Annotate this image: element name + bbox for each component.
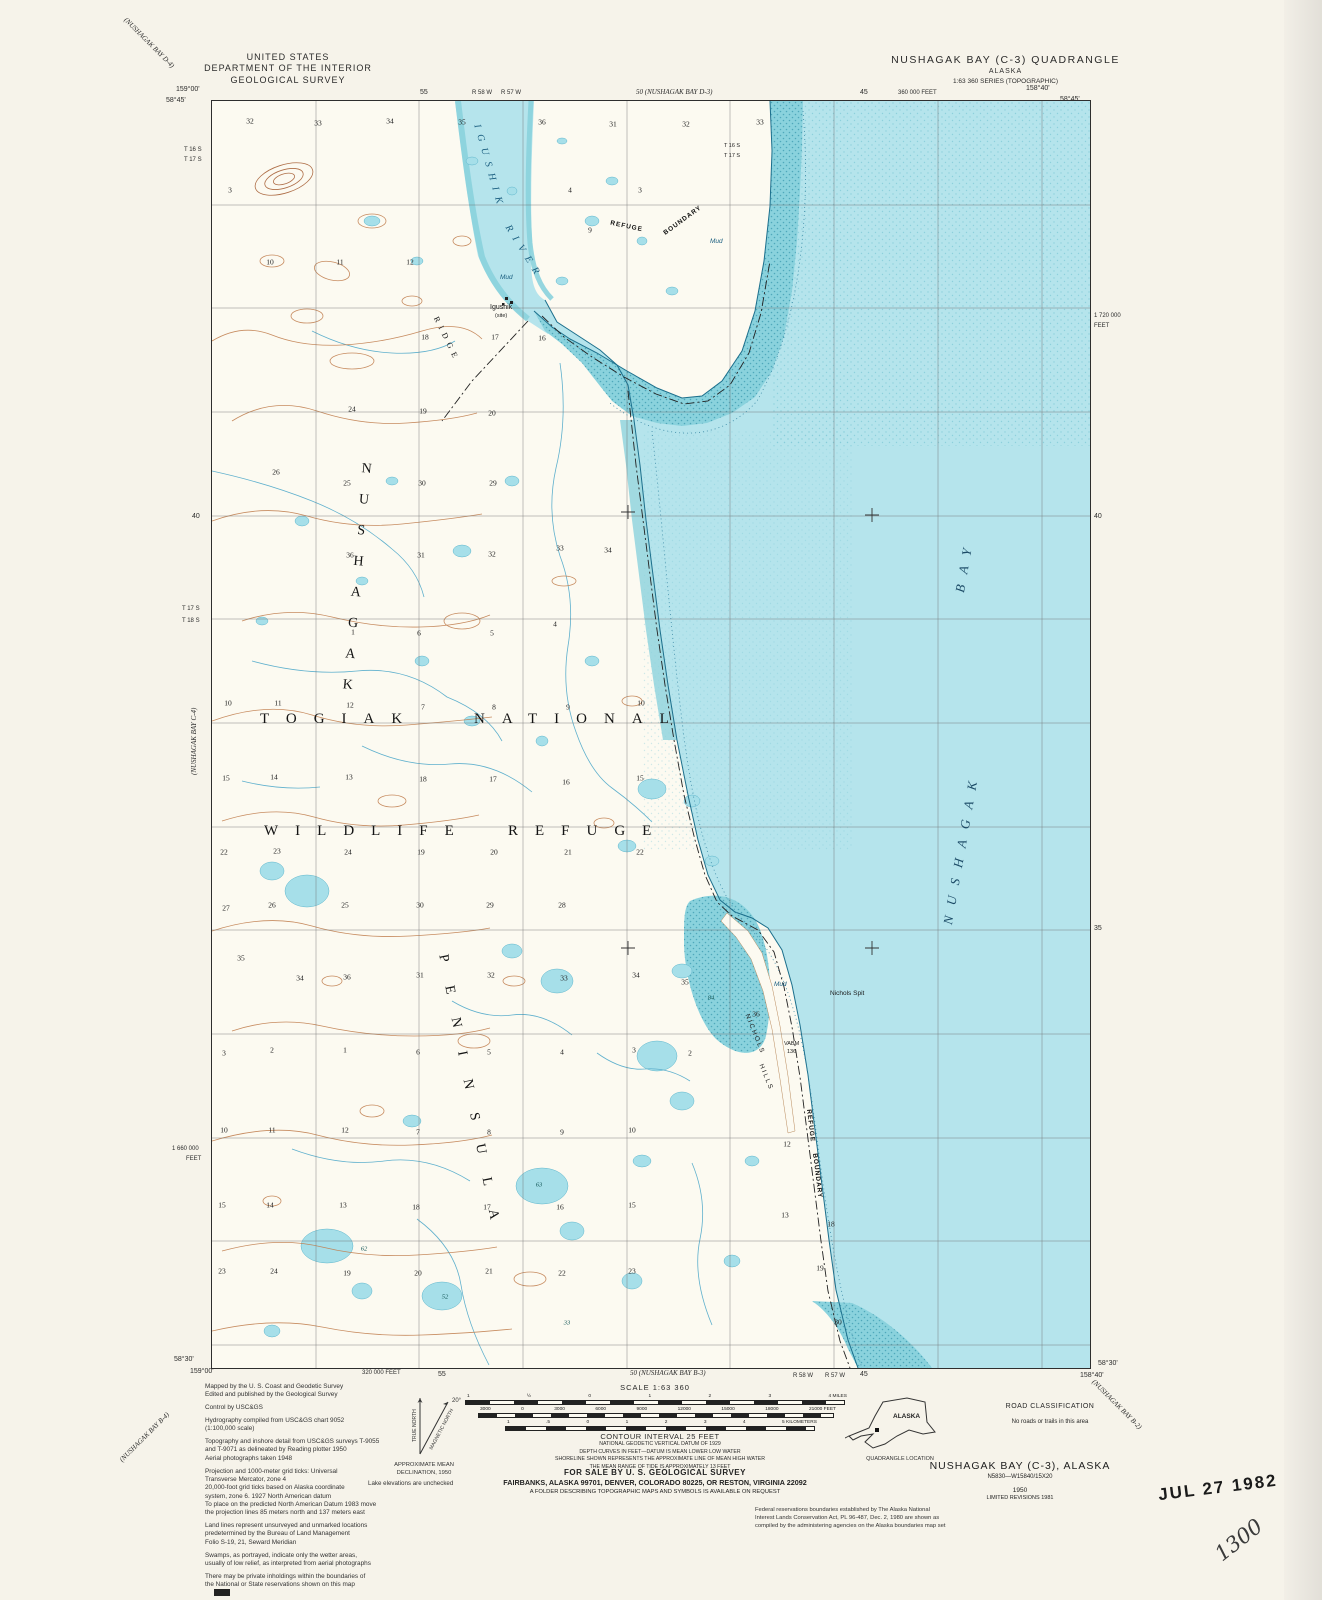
feet-label-right-1: 1 720 000 — [1094, 313, 1121, 319]
bar-tick: 21000 FEET — [809, 1407, 836, 1412]
section-number: 18 — [421, 333, 429, 342]
bar-tick: 15000 — [721, 1407, 734, 1412]
section-number: 19 — [417, 848, 425, 857]
km-bar — [505, 1426, 815, 1431]
section-number: 28 — [558, 901, 566, 910]
section-number: 1 — [351, 628, 355, 637]
sale-line1: FOR SALE BY U. S. GEOLOGICAL SURVEY — [455, 1468, 855, 1477]
section-number: 14 — [266, 1201, 274, 1210]
section-number: 13 — [339, 1201, 347, 1210]
date-stamp: JUL 27 1982 — [1157, 1471, 1279, 1505]
bar-tick: 12000 — [678, 1407, 691, 1412]
section-number: 3 — [222, 1049, 226, 1058]
bar-tick: 1 — [648, 1394, 651, 1399]
feet-tick-labels: 3000030006000900012000150001800021000 FE… — [478, 1407, 834, 1412]
map-canvas: TOGIAK NATIONAL WILDLIFE REFUGE NUSHAGAK… — [212, 101, 1090, 1368]
adjoining-quad-top-left: (NUSHAGAK BAY D-4) — [122, 16, 176, 70]
section-number: 33 — [560, 974, 568, 983]
bar-tick: 3000 — [554, 1407, 565, 1412]
road-classification-title: ROAD CLASSIFICATION — [985, 1403, 1115, 1410]
section-number: 3 — [632, 1046, 636, 1055]
bar-tick: 1 — [626, 1420, 629, 1425]
section-number: 16 — [538, 334, 546, 343]
range-label-top-2: R 57 W — [501, 90, 521, 96]
sale-block: FOR SALE BY U. S. GEOLOGICAL SURVEY FAIR… — [455, 1468, 855, 1495]
bar-tick: 3 — [704, 1420, 707, 1425]
road-classification-note: No roads or trails in this area — [985, 1419, 1115, 1425]
section-number: 15 — [628, 1201, 636, 1210]
section-number: 33 — [556, 544, 564, 553]
section-number: 1 — [343, 1046, 347, 1055]
bar-tick: 2 — [708, 1394, 711, 1399]
spot-elevation: 62 — [361, 1246, 368, 1253]
agency-line1: UNITED STATES — [168, 52, 408, 63]
section-number: 8 — [492, 703, 496, 712]
feet-label-left-2: FEET — [186, 1156, 201, 1162]
section-number: 32 — [487, 971, 495, 980]
quad-state: ALASKA — [858, 68, 1153, 77]
section-number: 26 — [272, 468, 280, 477]
section-number: 31 — [609, 120, 617, 129]
bar-tick: 0 — [588, 1394, 591, 1399]
grid-tick-right-40: 40 — [1094, 513, 1102, 520]
bar-tick: 6000 — [595, 1407, 606, 1412]
spot-elevation: 84 — [708, 995, 715, 1002]
section-number: 11 — [274, 699, 281, 708]
section-number: 30 — [834, 1318, 842, 1327]
section-number: 14 — [270, 773, 278, 782]
section-number: 20 — [414, 1269, 422, 1278]
section-number: 3 — [638, 186, 642, 195]
section-number: 34 — [296, 974, 304, 983]
section-number: 21 — [485, 1267, 493, 1276]
section-number: 34 — [632, 971, 640, 980]
section-number: 30 — [418, 479, 426, 488]
section-number: 9 — [560, 1128, 564, 1137]
spot-elevation: 63 — [536, 1182, 543, 1189]
section-number: 32 — [682, 120, 690, 129]
section-number: 2 — [688, 1049, 692, 1058]
section-number: 5 — [490, 629, 494, 638]
contour-interval: CONTOUR INTERVAL 25 FEET — [500, 1432, 820, 1441]
declination-angle: 20° — [452, 1398, 462, 1404]
section-number: 4 — [553, 620, 557, 629]
section-number: 16 — [556, 1203, 564, 1212]
section-number: 18 — [827, 1220, 835, 1229]
grid-tick-right-35: 35 — [1094, 925, 1102, 932]
credit-p: Swamps, as portrayed, indicate only the … — [205, 1552, 441, 1569]
section-number: 35 — [458, 118, 466, 127]
section-number: 10 — [266, 258, 274, 267]
bar-tick: 9000 — [637, 1407, 648, 1412]
bar-tick: 3 — [769, 1394, 772, 1399]
section-number: 15 — [222, 774, 230, 783]
section-number: 23 — [273, 847, 281, 856]
contour-interval-block: CONTOUR INTERVAL 25 FEET NATIONAL GEODET… — [500, 1432, 820, 1471]
section-number: 13 — [781, 1211, 789, 1220]
contour-line: DEPTH CURVES IN FEET—DATUM IS MEAN LOWER… — [500, 1449, 820, 1457]
section-number: 22 — [558, 1269, 566, 1278]
range-label-bottom-2: R 57 W — [825, 1373, 845, 1379]
section-number: 15 — [636, 774, 644, 783]
sheet-title-block: NUSHAGAK BAY (C-3), ALASKA N5830—W15840/… — [920, 1460, 1120, 1501]
section-number: 13 — [345, 773, 353, 782]
grid-tick-left-40: 40 — [192, 513, 200, 520]
credit-p: There may be private inholdings within t… — [205, 1573, 441, 1590]
section-number: 33 — [314, 119, 322, 128]
grid-tick-top-55: 55 — [420, 89, 428, 96]
contour-notes: NATIONAL GEODETIC VERTICAL DATUM OF 1929… — [500, 1441, 820, 1471]
section-number: 2 — [270, 1046, 274, 1055]
section-number: 24 — [344, 848, 352, 857]
corner-lon-bottom-right: 158°40' — [1080, 1372, 1104, 1379]
corner-lon-bottom-left: 159°00' — [190, 1368, 214, 1375]
section-number: 17 — [491, 333, 499, 342]
agency-line2: DEPARTMENT OF THE INTERIOR — [168, 63, 408, 74]
declination-diagram: 20° TRUE NORTH MAGNETIC NORTH — [392, 1392, 472, 1460]
bar-tick: 1 — [507, 1420, 510, 1425]
section-number: 16 — [562, 778, 570, 787]
section-number: 19 — [419, 407, 427, 416]
section-number: 15 — [218, 1201, 226, 1210]
quad-title-block: NUSHAGAK BAY (C-3) QUADRANGLE ALASKA 1:6… — [858, 54, 1153, 86]
bar-tick: 3000 — [480, 1407, 491, 1412]
quad-series: 1:63 360 SERIES (TOPOGRAPHIC) — [858, 78, 1153, 86]
section-number: 34 — [386, 117, 394, 126]
quad-title: NUSHAGAK BAY (C-3) QUADRANGLE — [858, 54, 1153, 67]
feet-label-left-1: 1 660 000 — [172, 1146, 199, 1152]
section-number: 17 — [489, 775, 497, 784]
section-number: 25 — [341, 901, 349, 910]
section-number: 4 — [568, 186, 572, 195]
section-number: 31 — [417, 551, 425, 560]
grid-tick-bottom-45: 45 — [860, 1371, 868, 1378]
range-label-bottom-1: R 58 W — [793, 1373, 813, 1379]
sheet-title: NUSHAGAK BAY (C-3), ALASKA — [920, 1460, 1120, 1472]
section-number: 25 — [343, 479, 351, 488]
scanned-topo-map-page: { "header": { "agency_line1": "UNITED ST… — [0, 0, 1322, 1600]
section-number: 33 — [756, 118, 764, 127]
section-number: 24 — [348, 405, 356, 414]
feet-bar — [478, 1413, 834, 1418]
section-number: 23 — [628, 1267, 636, 1276]
adjoining-quad-top-center: 50 (NUSHAGAK BAY D-3) — [636, 88, 712, 96]
section-number: 22 — [220, 848, 228, 857]
section-number: 31 — [416, 971, 424, 980]
handwritten-number: 1300 — [1210, 1514, 1267, 1566]
section-number: 20 — [488, 409, 496, 418]
section-number: 23 — [218, 1267, 226, 1276]
section-number: 19 — [816, 1264, 824, 1273]
feet-label-top: 360 000 FEET — [898, 90, 937, 96]
bar-tick: 18000 — [765, 1407, 778, 1412]
section-numbers-layer: 3233343536313233343910111218171624192026… — [212, 101, 1090, 1368]
section-number: 7 — [416, 1128, 420, 1137]
township-left-t17s-2: T 17 S — [182, 606, 200, 612]
spot-elevation: 33 — [564, 1320, 571, 1327]
section-number: 11 — [336, 258, 343, 267]
sheet-code: N5830—W15840/15X20 — [920, 1474, 1120, 1480]
township-left-t16s: T 16 S — [184, 147, 202, 153]
miles-tick-labels: 1½01234 MILES — [465, 1394, 845, 1399]
corner-lon-top-right: 158°40' — [1026, 85, 1050, 92]
adjoining-quad-bottom-center: 50 (NUSHAGAK BAY B-3) — [630, 1369, 706, 1377]
section-number: 12 — [783, 1140, 791, 1149]
miles-bar — [465, 1400, 845, 1405]
range-label-top-1: R 58 W — [472, 90, 492, 96]
section-number: 34 — [604, 546, 612, 555]
section-number: 36 — [752, 1010, 760, 1019]
bar-tick: 5 KILOMETERS — [782, 1420, 817, 1425]
section-number: 10 — [220, 1126, 228, 1135]
contour-line: NATIONAL GEODETIC VERTICAL DATUM OF 1929 — [500, 1441, 820, 1449]
scale-bar-miles: 1½01234 MILES — [465, 1394, 845, 1405]
section-number: 29 — [486, 901, 494, 910]
adjoining-quad-bottom-left: (NUSHAGAK BAY B-4) — [118, 1411, 171, 1464]
section-number: 9 — [588, 226, 592, 235]
section-number: 6 — [417, 629, 421, 638]
sale-line3: A FOLDER DESCRIBING TOPOGRAPHIC MAPS AND… — [455, 1489, 855, 1495]
section-number: 17 — [483, 1203, 491, 1212]
section-number: 12 — [406, 258, 414, 267]
sale-line2: FAIRBANKS, ALASKA 99701, DENVER, COLORAD… — [455, 1478, 855, 1487]
township-left-t18s: T 18 S — [182, 618, 200, 624]
corner-lat-bottom-left: 58°30' — [174, 1356, 194, 1363]
section-number: 30 — [416, 901, 424, 910]
inset-alaska-label: ALASKA — [893, 1413, 920, 1420]
quadrangle-location-inset: ALASKA — [845, 1388, 955, 1458]
feet-label-right-2: FEET — [1094, 323, 1109, 329]
spot-elevation: 52 — [442, 1294, 449, 1301]
grid-tick-top-45: 45 — [860, 89, 868, 96]
section-number: 11 — [268, 1126, 275, 1135]
section-number: 10 — [628, 1126, 636, 1135]
agency-header: UNITED STATES DEPARTMENT OF THE INTERIOR… — [168, 52, 408, 86]
section-number: 12 — [341, 1126, 349, 1135]
sheet-revision: LIMITED REVISIONS 1981 — [920, 1495, 1120, 1501]
township-left-t17s: T 17 S — [184, 157, 202, 163]
federal-reservations-note: Federal reservations boundaries establis… — [755, 1507, 980, 1530]
bar-tick: 4 — [743, 1420, 746, 1425]
section-number: 36 — [346, 551, 354, 560]
section-number: 26 — [268, 901, 276, 910]
section-number: 5 — [487, 1048, 491, 1057]
scale-bar-km: 1.5012345 KILOMETERS — [505, 1420, 815, 1431]
true-north-label: TRUE NORTH — [412, 1409, 418, 1442]
section-number: 22 — [636, 848, 644, 857]
corner-lat-bottom-right: 58°30' — [1098, 1360, 1118, 1367]
section-number: 36 — [343, 973, 351, 982]
bar-tick: 0 — [587, 1420, 590, 1425]
feet-label-bottom: 320 000 FEET — [362, 1370, 401, 1376]
scan-edge-shadow — [1284, 0, 1322, 1600]
bar-tick: 1 — [467, 1394, 470, 1399]
bar-tick: 0 — [521, 1407, 524, 1412]
section-number: 9 — [566, 703, 570, 712]
km-tick-labels: 1.5012345 KILOMETERS — [505, 1420, 815, 1425]
scale-label: SCALE 1:63 360 — [575, 1383, 735, 1392]
grid-tick-bottom-55: 55 — [438, 1371, 446, 1378]
section-number: 21 — [564, 848, 572, 857]
section-number: 18 — [412, 1203, 420, 1212]
section-number: 4 — [560, 1048, 564, 1057]
section-number: 10 — [637, 699, 645, 708]
agency-line3: GEOLOGICAL SURVEY — [168, 75, 408, 86]
section-number: 12 — [346, 701, 354, 710]
corner-lat-top-left: 58°45' — [166, 97, 186, 104]
section-number: 8 — [487, 1128, 491, 1137]
bar-tick: 2 — [665, 1420, 668, 1425]
section-number: 3 — [228, 186, 232, 195]
section-number: 35 — [681, 978, 689, 987]
sheet-year: 1950 — [920, 1487, 1120, 1494]
section-number: 7 — [421, 703, 425, 712]
section-number: 32 — [488, 550, 496, 559]
scan-corner-mark — [214, 1589, 230, 1596]
bar-tick: .5 — [546, 1420, 550, 1425]
section-number: 24 — [270, 1267, 278, 1276]
section-number: 35 — [237, 954, 245, 963]
section-number: 19 — [343, 1269, 351, 1278]
section-number: 20 — [490, 848, 498, 857]
section-number: 10 — [224, 699, 232, 708]
section-number: 27 — [222, 904, 230, 913]
contour-line: SHORELINE SHOWN REPRESENTS THE APPROXIMA… — [500, 1456, 820, 1464]
section-number: 6 — [416, 1048, 420, 1057]
section-number: 32 — [246, 117, 254, 126]
quad-location-dot — [875, 1428, 879, 1432]
bar-tick: ½ — [527, 1394, 531, 1399]
adjoining-quad-left: (NUSHAGAK BAY C-4) — [190, 708, 198, 775]
corner-lon-top-left: 159°00' — [176, 86, 200, 93]
section-number: 18 — [419, 775, 427, 784]
section-number: 36 — [538, 118, 546, 127]
lake-elevation-note: Lake elevations are unchecked — [368, 1480, 453, 1487]
credit-p: Land lines represent unsurveyed and unma… — [205, 1522, 441, 1547]
scale-bar-feet: 3000030006000900012000150001800021000 FE… — [478, 1407, 834, 1418]
section-number: 29 — [489, 479, 497, 488]
